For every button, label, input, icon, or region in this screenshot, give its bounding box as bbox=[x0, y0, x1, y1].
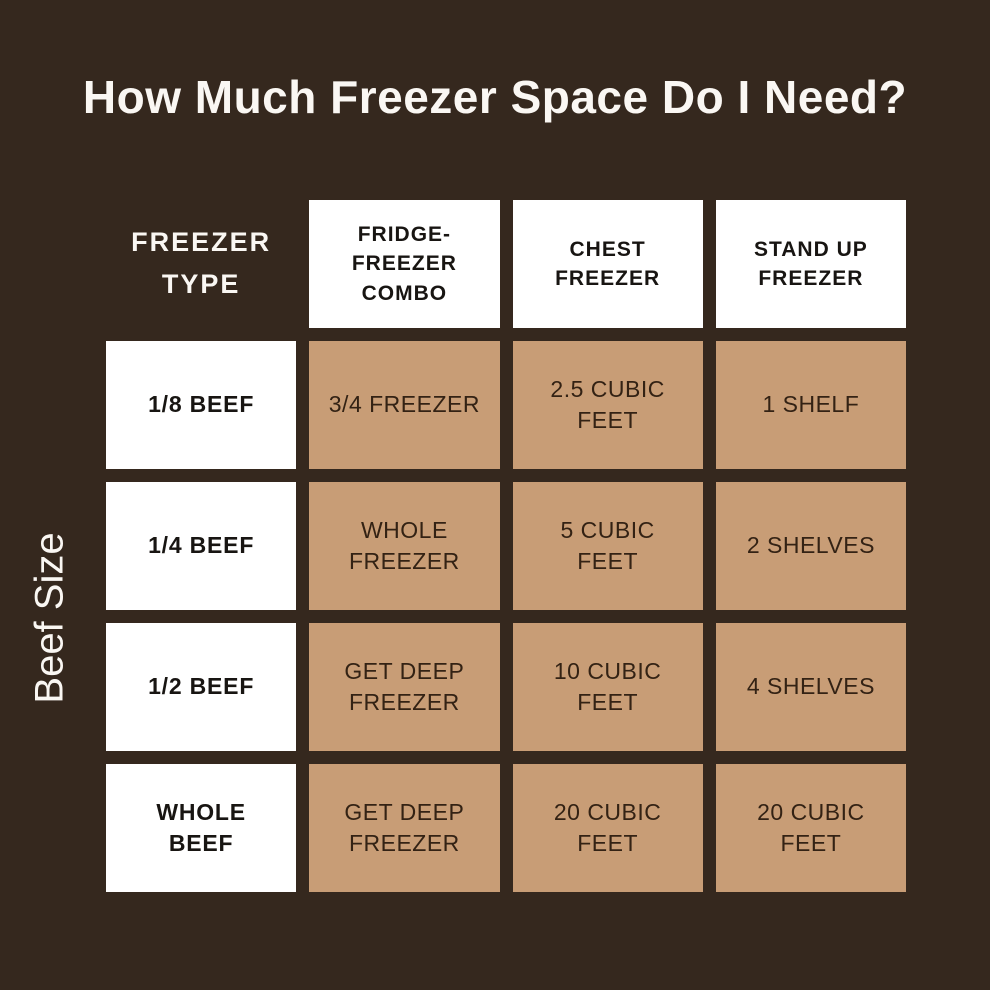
cell-eighth-beef-stand-up-freezer: 1 SHELF bbox=[716, 341, 906, 469]
page-title: How Much Freezer Space Do I Need? bbox=[0, 70, 990, 124]
cell-half-beef-stand-up-freezer: 4 SHELVES bbox=[716, 623, 906, 751]
column-header-stand-up-freezer: STAND UP FREEZER bbox=[716, 200, 906, 328]
cell-half-beef-chest-freezer: 10 CUBIC FEET bbox=[513, 623, 703, 751]
column-header-chest-freezer: CHEST FREEZER bbox=[513, 200, 703, 328]
column-header-fridge-freezer-combo: FRIDGE- FREEZER COMBO bbox=[309, 200, 499, 328]
cell-eighth-beef-chest-freezer: 2.5 CUBIC FEET bbox=[513, 341, 703, 469]
cell-whole-beef-chest-freezer: 20 CUBIC FEET bbox=[513, 764, 703, 892]
row-label-eighth-beef: 1/8 BEEF bbox=[106, 341, 296, 469]
cell-half-beef-fridge-freezer-combo: GET DEEP FREEZER bbox=[309, 623, 499, 751]
cell-quarter-beef-stand-up-freezer: 2 SHELVES bbox=[716, 482, 906, 610]
row-label-half-beef: 1/2 BEEF bbox=[106, 623, 296, 751]
cell-whole-beef-fridge-freezer-combo: GET DEEP FREEZER bbox=[309, 764, 499, 892]
cell-eighth-beef-fridge-freezer-combo: 3/4 FREEZER bbox=[309, 341, 499, 469]
cell-whole-beef-stand-up-freezer: 20 CUBIC FEET bbox=[716, 764, 906, 892]
row-label-quarter-beef: 1/4 BEEF bbox=[106, 482, 296, 610]
beef-size-axis-label: Beef Size bbox=[28, 532, 73, 703]
cell-quarter-beef-fridge-freezer-combo: WHOLE FREEZER bbox=[309, 482, 499, 610]
cell-quarter-beef-chest-freezer: 5 CUBIC FEET bbox=[513, 482, 703, 610]
corner-label-freezer-type: FREEZER TYPE bbox=[106, 200, 296, 328]
row-label-whole-beef: WHOLE BEEF bbox=[106, 764, 296, 892]
freezer-space-table: FREEZER TYPE FRIDGE- FREEZER COMBO CHEST… bbox=[106, 200, 906, 892]
